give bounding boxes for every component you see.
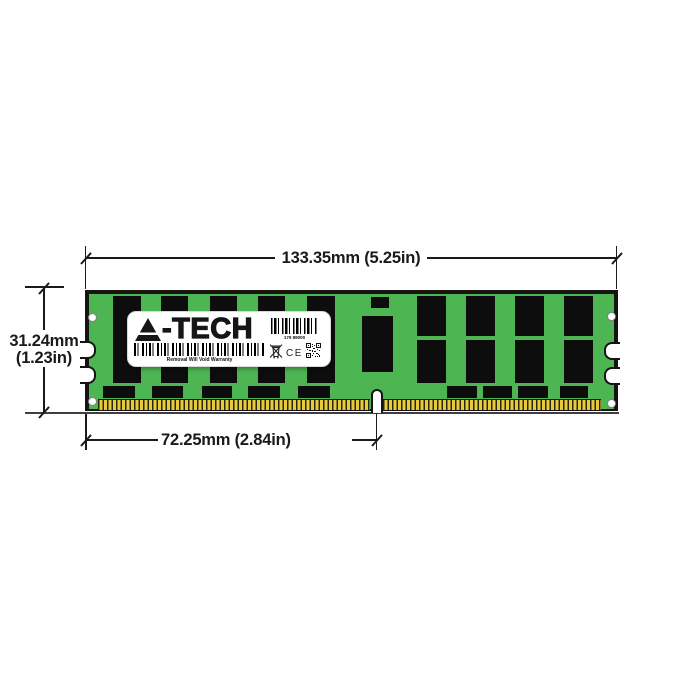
- small-component: [298, 386, 330, 398]
- small-component: [152, 386, 183, 398]
- height-dimension-label: 31.24mm (1.23in): [6, 333, 82, 367]
- dram-chip: [564, 340, 593, 383]
- small-component: [103, 386, 135, 398]
- mounting-hole: [88, 397, 97, 406]
- mounting-hole: [88, 313, 97, 322]
- atech-logo-triangle-a: A: [135, 318, 161, 341]
- width-dimension: 133.35mm (5.25in): [85, 248, 617, 268]
- width-dimension-label: 133.35mm (5.25in): [282, 249, 421, 268]
- small-component: [202, 386, 232, 398]
- height-dimension-in: (1.23in): [6, 350, 82, 367]
- extension-line: [376, 413, 378, 450]
- dram-chip: [515, 340, 544, 383]
- dimension-line: [86, 439, 158, 441]
- small-component: [371, 297, 389, 308]
- small-component: [447, 386, 477, 398]
- mounting-hole: [607, 399, 616, 408]
- warranty-barcode-icon: [134, 343, 265, 356]
- ce-mark: CE: [286, 348, 303, 359]
- extension-line: [85, 414, 87, 450]
- module-shadow-line: [25, 412, 619, 414]
- edge-notch-icon: [604, 367, 620, 385]
- notch-dimension-label: 72.25mm (2.84in): [161, 431, 291, 450]
- dram-chip: [466, 296, 495, 336]
- height-dimension-mm: 31.24mm: [6, 333, 82, 350]
- dimension-line: [43, 367, 45, 413]
- warranty-text: Removal Will Void Warranty: [134, 357, 265, 363]
- dram-chip: [466, 340, 495, 383]
- dimension-line: [43, 288, 45, 330]
- gold-pins-left: [98, 399, 370, 410]
- weee-crossed-bin-icon: [269, 343, 283, 360]
- product-dimension-diagram: A -TECH 179 88000 Removal Will Void Warr…: [0, 0, 700, 700]
- small-component: [483, 386, 512, 398]
- edge-notch-icon: [80, 366, 96, 384]
- dram-chip: [564, 296, 593, 336]
- edge-notch-icon: [80, 341, 96, 359]
- key-notch: [371, 389, 383, 413]
- mounting-hole: [607, 312, 616, 321]
- qr-code-icon: [306, 343, 321, 358]
- serial-barcode-icon: [271, 318, 318, 334]
- register-chip: [362, 316, 393, 372]
- atech-logo-text: -TECH: [162, 318, 253, 341]
- small-component: [248, 386, 280, 398]
- atech-logo: A -TECH: [135, 317, 253, 341]
- dimension-line: [427, 257, 617, 259]
- small-component: [518, 386, 548, 398]
- edge-notch-icon: [604, 342, 620, 360]
- serial-number: 179 88000: [271, 335, 318, 340]
- dimension-line: [352, 439, 377, 441]
- dram-chip: [515, 296, 544, 336]
- gold-pins-right: [383, 399, 601, 410]
- small-component: [560, 386, 588, 398]
- dram-chip: [417, 296, 446, 336]
- dram-chip: [417, 340, 446, 383]
- product-label: A -TECH 179 88000 Removal Will Void Warr…: [128, 312, 330, 366]
- dimension-line: [85, 257, 275, 259]
